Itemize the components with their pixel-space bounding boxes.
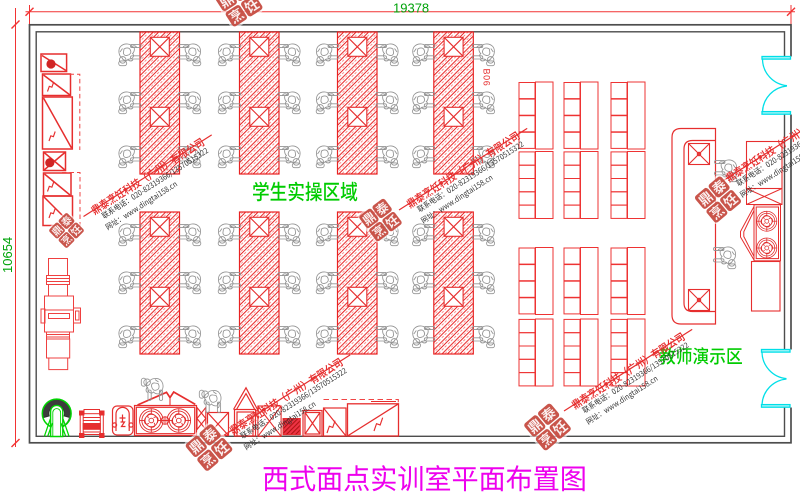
svg-text:10654: 10654 [0, 237, 15, 273]
svg-text:19378: 19378 [393, 1, 429, 16]
svg-text:B06: B06 [482, 69, 492, 87]
